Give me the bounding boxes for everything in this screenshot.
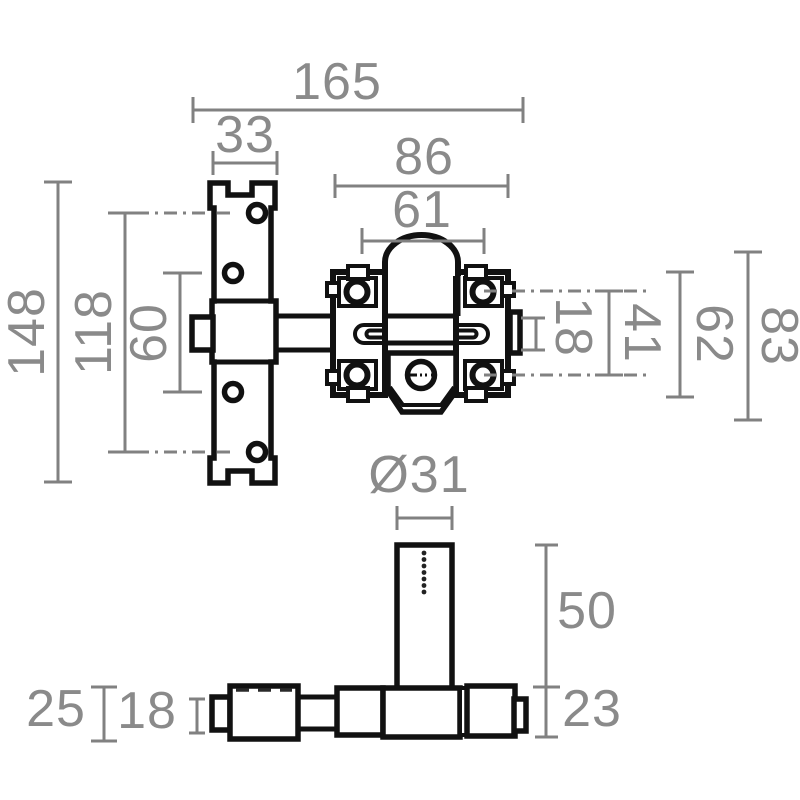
dimline-18-bar xyxy=(528,318,544,350)
lock-dimension-drawing: 165 33 86 61 148 118 60 18 41 62 83 Ø31 … xyxy=(0,0,800,800)
notch-bottom-right-wing xyxy=(466,388,486,401)
dim-label-plate-height: 148 xyxy=(0,287,56,377)
dim-label-body-screw-v: 41 xyxy=(613,303,671,363)
dim-label-total-width: 165 xyxy=(292,53,382,111)
dim-label-cylinder-length: 50 xyxy=(557,582,617,640)
dimline-18-bottom xyxy=(189,699,205,733)
notch-right-edge-lower xyxy=(502,371,514,384)
dimline-50-23 xyxy=(533,545,560,737)
dim-label-cylinder-diameter: Ø31 xyxy=(368,446,469,504)
body-center-sides xyxy=(385,273,458,316)
dim-label-bar-depth: 23 xyxy=(562,680,622,738)
keeper-screw-hole-top xyxy=(249,205,266,222)
notch-left-edge-lower xyxy=(327,371,339,384)
keeper-screw-hole-bottom xyxy=(249,444,266,461)
dim-label-body-height: 62 xyxy=(685,304,743,364)
keeper-screw-hole-lower-mid xyxy=(225,384,242,401)
body-screw-hole-top-left xyxy=(347,282,368,303)
dim-label-screw-spacing-h: 61 xyxy=(392,181,452,239)
dim-label-block-depth: 25 xyxy=(26,680,86,738)
dim-label-body-overall-height: 83 xyxy=(750,306,800,366)
bolt-end-cap-left xyxy=(192,317,213,350)
bar-thin-section xyxy=(298,697,337,729)
body-screw-hole-bottom-left xyxy=(347,365,368,386)
dim-label-plate-screw-inner: 60 xyxy=(120,303,178,363)
bottom-view xyxy=(212,545,526,739)
front-view xyxy=(192,183,520,483)
dim-label-plate-screw-outer: 118 xyxy=(65,289,123,375)
bar-cylinder-block xyxy=(383,688,460,737)
dim-label-bar-end-depth: 18 xyxy=(117,682,177,740)
keeper-screw-hole-upper-mid xyxy=(225,265,242,282)
bolt-bar-center-segment xyxy=(386,316,457,343)
bar-left-block xyxy=(230,686,298,739)
bar-right-cap xyxy=(514,699,526,731)
notch-top-right-wing xyxy=(466,266,486,279)
notch-left-edge-upper xyxy=(327,283,339,296)
notch-bottom-left-wing xyxy=(348,388,368,401)
dimline-25 xyxy=(91,687,117,741)
bolt-bar-left-segment xyxy=(276,316,333,350)
technical-drawing-page: 165 33 86 61 148 118 60 18 41 62 83 Ø31 … xyxy=(0,0,800,800)
bar-middle-block xyxy=(337,688,383,735)
bar-right-block xyxy=(467,686,515,736)
bolt-end-cap-right xyxy=(510,312,520,353)
dim-label-plate-width: 33 xyxy=(215,106,275,164)
dim-label-body-width: 86 xyxy=(394,128,454,186)
notch-top-left-wing xyxy=(348,266,368,279)
keeper-plate-outline xyxy=(210,183,276,483)
dim-label-bolt-bar-height: 18 xyxy=(544,297,602,357)
dimline-d31 xyxy=(397,506,452,530)
